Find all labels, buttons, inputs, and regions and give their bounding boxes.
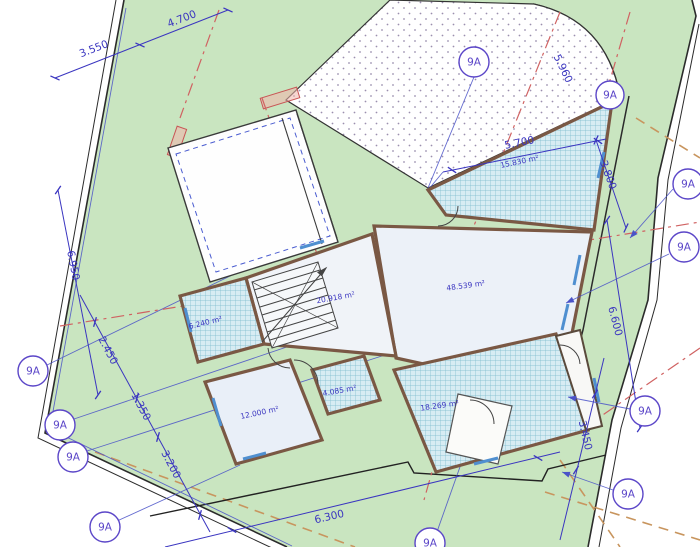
marker-9a: 9A [613,479,643,509]
marker-9a: 9A [459,47,489,77]
marker-9a: 9A [58,442,88,472]
marker-9a: 9A [630,396,660,426]
marker-9a-label: 9A [621,489,636,501]
marker-9a: 9A [596,81,624,109]
marker-9a-label: 9A [53,420,68,432]
dim-label-3550: 3.550 [78,38,110,60]
site-plan-drawing: 3.550 4.700 5.960 5.700 3.800 6.600 [0,0,700,547]
marker-9a-label: 9A [638,406,653,418]
marker-9a: 9A [18,356,48,386]
marker-9a-label: 9A [98,522,113,534]
marker-9a: 9A [673,169,700,199]
marker-9a-label: 9A [467,57,482,69]
marker-9a-label: 9A [677,242,692,254]
marker-9a-label: 9A [681,179,696,191]
marker-9a-label: 9A [603,90,618,102]
marker-9a: 9A [90,512,120,542]
marker-9a-label: 9A [423,538,438,547]
marker-9a-label: 9A [66,452,81,464]
marker-9a-label: 9A [26,366,41,378]
marker-9a: 9A [45,410,75,440]
marker-9a: 9A [669,232,699,262]
